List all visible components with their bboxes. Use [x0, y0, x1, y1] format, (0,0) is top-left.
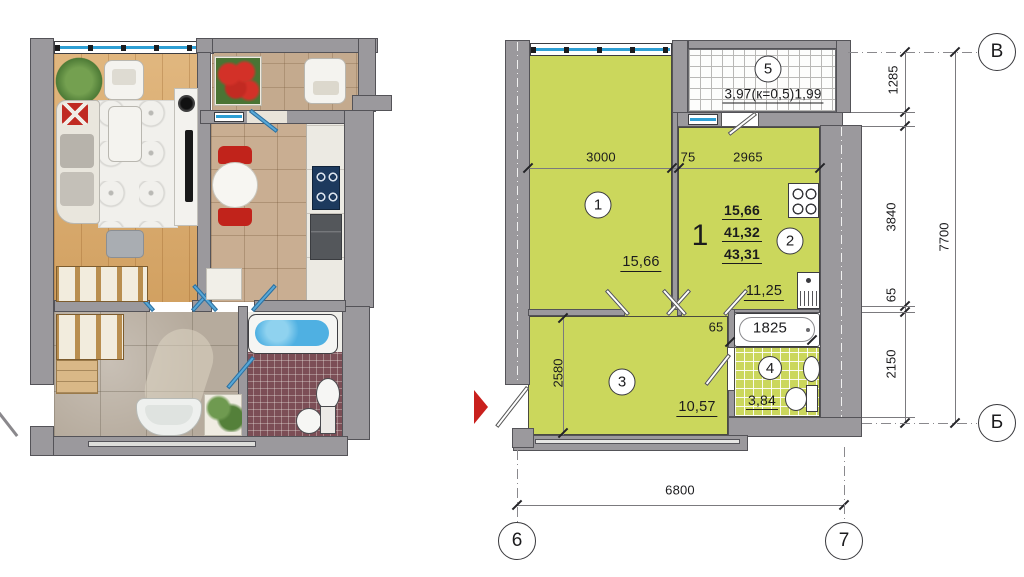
room3-number-badge: 3: [609, 369, 636, 396]
rp-sink-drain: [806, 278, 811, 283]
dim-label-3840: 3840: [884, 203, 899, 232]
dim-label-6800: 6800: [665, 483, 695, 498]
lp-toilet-tank: [320, 406, 336, 434]
lp-corner-block: [30, 426, 54, 456]
lp-kitchen-cabinet: [206, 268, 242, 300]
lp-bath-water: [255, 320, 329, 346]
axis-line-b-row: [862, 423, 977, 424]
room4-area-label: 3,84: [746, 392, 778, 410]
dim-line-right-outer: [955, 52, 956, 423]
lp-right-stub-wall: [352, 95, 392, 111]
grid-marker-7: 7: [825, 522, 863, 560]
ext-line: [862, 126, 915, 127]
rp-right-wall-axis: [841, 127, 842, 435]
rp-toilet-bowl-icon: [785, 387, 807, 411]
floor-plan-canvas: 3000 75 2965 1285 3840 65 2150 7700 2580…: [0, 0, 1024, 577]
grid-marker-v: В: [978, 33, 1016, 71]
room1-area-label: 15,66: [620, 254, 661, 272]
ext-line: [851, 112, 915, 113]
lp-kitchen-counter: [306, 124, 344, 302]
rp-balcony-top-wall: [688, 40, 851, 49]
lp-bathtub: [248, 314, 338, 354]
lp-cooktop: [312, 166, 340, 210]
dim-label-2150: 2150: [884, 350, 899, 379]
lp-entrance-door-leaf: [0, 394, 18, 437]
lp-kitchen-right-wall: [344, 110, 374, 308]
lp-speaker: [178, 95, 195, 112]
dim-label-1285: 1285: [886, 66, 901, 95]
lp-ottoman: [106, 230, 144, 258]
rp-corner-block: [512, 428, 534, 448]
lp-threshold: [88, 441, 256, 447]
rp-wc-left-stub: [728, 390, 735, 417]
rp-kitchen-sink-icon: [797, 272, 820, 309]
lp-armchair-cushion: [112, 69, 136, 85]
dim-label-7700: 7700: [937, 223, 952, 252]
rp-stove-icon: [788, 183, 819, 218]
lp-balcony-chair: [304, 58, 346, 104]
lp-wall-kitchen-hall: [254, 300, 346, 312]
room2-area-label: 11,25: [744, 283, 784, 301]
lp-sofa-cushion-2: [60, 172, 94, 206]
rp-room1-window: [530, 43, 672, 56]
rp-wall-room1-hall: [528, 309, 625, 316]
dim-label-65-right: 65: [884, 288, 899, 302]
rp-partition-1-2: [672, 112, 678, 310]
rp-left-wall-axis: [517, 42, 518, 383]
dim-line-bottom: [517, 505, 844, 506]
rp-pier-top: [672, 40, 688, 117]
lp-kitchen-window: [214, 112, 244, 122]
dim-label-1825: 1825: [753, 320, 787, 337]
apartment-room-count: 1: [692, 219, 709, 253]
dim-label-75: 75: [681, 150, 696, 165]
balcony-number-badge: 5: [755, 56, 782, 83]
rp-entrance-arrow: [474, 390, 488, 424]
lp-bench-seat: [145, 405, 193, 425]
lp-left-wall: [30, 38, 54, 385]
lp-flag-pillow: [62, 103, 88, 125]
room3-area-label: 10,57: [676, 399, 717, 417]
apartment-total-area: 43,31: [722, 246, 762, 264]
room4-number-badge: 4: [758, 356, 782, 380]
lp-dining-table: [212, 162, 258, 208]
lp-dresser: [56, 360, 98, 394]
lp-wardrobe-hall: [56, 314, 124, 360]
dim-line-right-inner: [905, 52, 906, 423]
lp-partition-living-kitchen: [197, 52, 211, 304]
rp-toilet-tank-icon: [806, 385, 818, 412]
axis-line-col6: [517, 450, 518, 522]
lp-tv: [185, 130, 193, 202]
room1-number-badge: 1: [585, 192, 612, 219]
lp-living-window: [54, 41, 198, 54]
lp-coffee-table: [108, 106, 142, 162]
ext-line: [862, 306, 915, 307]
lp-toilet-bowl: [296, 408, 322, 434]
rp-bathtub-drain: [806, 328, 810, 332]
rp-entrance-door-leaf: [495, 386, 529, 428]
dim-line-top: [528, 168, 820, 169]
balcony-area-formula: 3,97(к=0,5)1,99: [722, 87, 823, 104]
rp-sink-hatch: [800, 291, 817, 306]
dim-label-65-bath: 65: [709, 320, 724, 335]
axis-line-v-row: [848, 52, 977, 53]
apartment-living-area: 15,66: [722, 202, 762, 220]
rp-balcony-right-wall: [836, 40, 851, 113]
ext-line: [862, 417, 915, 418]
grid-marker-6: 6: [498, 522, 536, 560]
room2-number-badge: 2: [777, 228, 804, 255]
rp-wc-bottom-wall: [728, 417, 862, 437]
lp-bath-right-wall: [342, 306, 370, 440]
lp-sofa-cushion-1: [60, 134, 94, 168]
lp-fridge: [310, 214, 342, 260]
lp-balcony-chair-seat: [313, 81, 339, 95]
ext-line: [862, 312, 915, 313]
lp-flowers: [216, 58, 260, 104]
axis-line-col7: [844, 447, 845, 522]
apartment-heated-area: 41,32: [722, 224, 762, 242]
dim-label-2580: 2580: [551, 359, 566, 388]
lp-armchair: [104, 60, 144, 100]
lp-chair-bottom: [218, 208, 252, 226]
grid-marker-b: Б: [978, 404, 1016, 442]
lp-plant-hall: [206, 392, 242, 432]
rp-threshold: [535, 439, 740, 444]
rp-kitchen-window: [688, 114, 718, 125]
dim-label-3000: 3000: [586, 150, 616, 165]
lp-wardrobe-living: [56, 266, 148, 302]
dim-label-2965: 2965: [733, 150, 763, 165]
lp-balcony-top-wall: [212, 38, 378, 53]
rp-wc-sink-icon: [803, 356, 820, 382]
